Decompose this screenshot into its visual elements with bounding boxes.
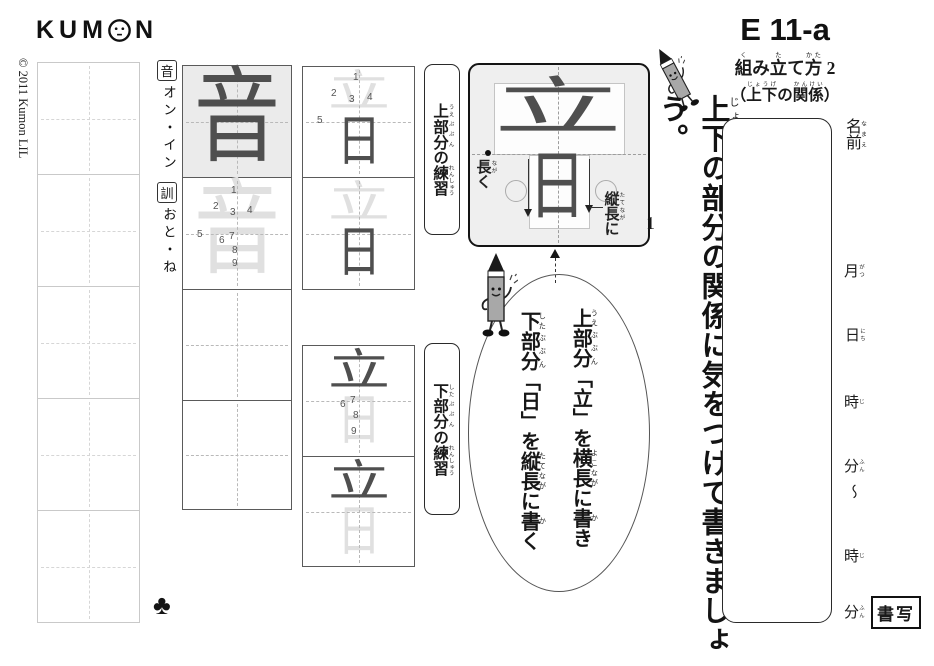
stroke-number: 1 (353, 73, 359, 83)
stroke-start-dot (485, 150, 491, 156)
stroke-number: 3 (349, 95, 355, 105)
balloon-text-upper: 上うえ部分ぶぶん「立」を横長よこながに書かき (569, 308, 598, 548)
on-reading: オン・イン (158, 85, 178, 173)
worksheet-title: 組くみ立たて方かた 2 (688, 52, 882, 80)
model-kanji-cell: 音 (182, 65, 292, 178)
lower-part-practice-cell: 立 日 (302, 456, 415, 567)
upper-part-practice-cell: 立 日 (302, 177, 415, 290)
lower-part-label: 下した部分ぶぶんの練習れんしゅう (430, 383, 453, 476)
start-hour-label: 時じ (840, 394, 864, 409)
lower-part-practice-cell: 立 日 6 7 8 9 (302, 345, 415, 457)
blank-practice-cell (37, 286, 140, 399)
empty-practice-cell (182, 289, 292, 401)
lower-part-label-ribbon: 下した部分ぶぶんの練習れんしゅう (424, 343, 460, 515)
stroke-number: 4 (247, 206, 253, 216)
upper-part-label-ribbon: 上うえ部分ぶぶんの練習れんしゅう (424, 64, 460, 235)
logo-text-right: N (135, 16, 158, 45)
printed-upper-part: 立 (327, 349, 389, 393)
end-minute-label: 分ふん (840, 604, 864, 619)
example-box: 立 日 長ながく 縦たて長ながに (468, 63, 650, 247)
empty-practice-cell (182, 400, 292, 510)
pencil-mascot-icon (474, 252, 518, 349)
trace-upper-part: 立 (327, 181, 389, 225)
stroke-number: 7 (229, 232, 235, 242)
stroke-number: 9 (351, 427, 357, 437)
upper-part-label: 上うえ部分ぶぶんの練習れんしゅう (430, 103, 453, 196)
stroke-number: 6 (340, 400, 346, 410)
trace-lower-part: 日 (336, 504, 380, 559)
nagaku-annotation: 長ながく (474, 159, 497, 189)
stroke-number: 1 (231, 186, 237, 196)
stroke-number: 8 (232, 246, 238, 256)
stroke-number: 9 (232, 259, 238, 269)
stroke-number: 2 (331, 89, 337, 99)
blank-practice-cell (37, 510, 140, 623)
stroke-number: 8 (353, 411, 359, 421)
stroke-number: 6 (219, 236, 225, 246)
balance-circle-left (505, 180, 527, 202)
blank-practice-cell (37, 62, 140, 175)
blank-practice-cell (37, 398, 140, 511)
subject-badge: 書写 (871, 596, 921, 629)
stroke-number: 3 (230, 208, 236, 218)
down-arrow-right (589, 159, 590, 205)
copyright: © 2011 Kumon LIL (15, 58, 30, 158)
kun-reading: おと・ね (158, 207, 178, 277)
worksheet-page: KUMN © 2011 Kumon LIL 音 オン・イン 訓 おと・ね 音 音… (0, 0, 934, 666)
example-upper-part: 立 (494, 77, 623, 140)
tatenaga-annotation: 縦たて長ながに (602, 191, 625, 236)
upper-part-practice-cell: 立 日 1 2 3 4 5 (302, 66, 415, 178)
name-entry-box (722, 118, 832, 623)
end-hour-label: 時じ (840, 548, 864, 563)
kumon-logo: KUMN (36, 16, 158, 45)
stroke-number: 2 (213, 202, 219, 212)
start-minute-label: 分ふん (840, 458, 864, 473)
stroke-number: 5 (197, 230, 203, 240)
down-arrow-left-head (524, 209, 532, 217)
printed-upper-part: 立 (327, 460, 389, 504)
model-kanji: 音 (194, 66, 280, 170)
club-suit-icon: ♣ (153, 590, 171, 621)
stroke-number: 5 (317, 116, 323, 126)
stroke-number: 7 (350, 396, 356, 406)
day-label: 日にち (841, 327, 865, 342)
down-arrow-left (528, 159, 529, 209)
kumon-face-icon (106, 17, 133, 44)
worksheet-code: E 11-a (700, 12, 870, 48)
up-arrow-head (550, 249, 560, 258)
month-label: 月がつ (840, 263, 864, 278)
name-label: 名前なまえ (839, 118, 866, 150)
logo-text-left: KUM (36, 16, 108, 45)
balloon-text-lower: 下した部分ぶぶん「日」を縦長たてながに書かく (517, 311, 546, 551)
printed-lower-part: 日 (336, 114, 380, 169)
example-lower-part: 日 (528, 149, 586, 225)
trace-kanji-cell: 音 1 2 3 4 5 6 7 8 9 (182, 177, 292, 290)
printed-lower-part: 日 (336, 225, 380, 280)
on-reading-marker: 音 (157, 60, 177, 81)
kun-reading-marker: 訓 (157, 182, 177, 203)
tilde-separator: ～ (843, 484, 864, 499)
stroke-number: 4 (367, 93, 373, 103)
blank-practice-cell (37, 174, 140, 287)
